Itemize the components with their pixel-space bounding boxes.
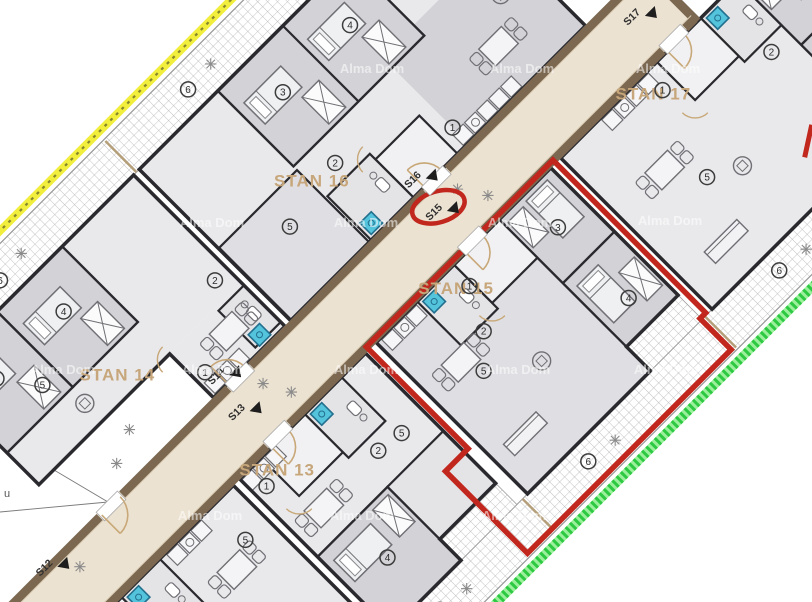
- svg-text:5: 5: [40, 380, 46, 391]
- floor-plan: uS12S13S14S15S16S17STAN 13STAN 15STAN 17…: [0, 0, 812, 602]
- svg-text:2: 2: [212, 276, 218, 287]
- svg-text:6: 6: [586, 457, 592, 468]
- svg-text:5: 5: [243, 535, 249, 546]
- apartment-label-stan-15: STAN 15: [418, 279, 494, 298]
- svg-text:6: 6: [0, 276, 3, 287]
- watermark: Alma Dom: [490, 61, 554, 76]
- svg-text:5: 5: [704, 173, 710, 184]
- apartment-label-stan-16: STAN 16: [274, 171, 350, 190]
- svg-text:5: 5: [287, 222, 293, 233]
- watermark: Alma Dom: [330, 508, 394, 523]
- svg-text:2: 2: [769, 47, 775, 58]
- apartment-label-stan-13: STAN 13: [239, 460, 315, 479]
- svg-text:1: 1: [264, 482, 270, 493]
- svg-text:5: 5: [399, 429, 405, 440]
- svg-text:2: 2: [481, 327, 487, 338]
- svg-text:STAN 16: STAN 16: [274, 171, 350, 190]
- svg-text:STAN 17: STAN 17: [616, 84, 692, 103]
- apartment-label-stan-17: STAN 17: [616, 84, 692, 103]
- svg-text:4: 4: [385, 553, 391, 564]
- svg-text:4: 4: [61, 307, 67, 318]
- svg-text:1: 1: [660, 86, 666, 97]
- site-boundary-line: [0, 502, 108, 512]
- svg-text:1: 1: [450, 123, 456, 134]
- watermark: Alma Dom: [182, 362, 246, 377]
- watermark: Alma Dom: [334, 362, 398, 377]
- watermark: Alma Dom: [636, 61, 700, 76]
- svg-text:6: 6: [185, 85, 191, 96]
- svg-text:1: 1: [467, 281, 473, 292]
- watermark: Alma Dom: [334, 215, 398, 230]
- watermark: Alma Dom: [340, 61, 404, 76]
- watermark: Alma Dom: [638, 213, 702, 228]
- plant-icon: [121, 421, 138, 438]
- svg-text:3: 3: [555, 223, 561, 234]
- corner-text: u: [4, 488, 10, 500]
- svg-text:6: 6: [776, 266, 782, 277]
- watermark: Alma Dom: [482, 508, 546, 523]
- svg-text:3: 3: [280, 88, 286, 99]
- watermark: Alma Dom: [178, 508, 242, 523]
- watermark: Alma Dom: [634, 362, 698, 377]
- plant-icon: [108, 455, 125, 472]
- svg-text:STAN 15: STAN 15: [418, 279, 494, 298]
- svg-text:2: 2: [376, 446, 382, 457]
- svg-text:STAN 13: STAN 13: [239, 460, 315, 479]
- watermark: Alma Dom: [488, 215, 552, 230]
- building-rotated-group: S12S13S14S15S16S17STAN 13STAN 15STAN 17S…: [0, 0, 812, 602]
- watermark: Alma Dom: [31, 362, 95, 377]
- svg-text:2: 2: [332, 158, 338, 169]
- svg-text:4: 4: [626, 294, 632, 305]
- watermark: Alma Dom: [180, 215, 244, 230]
- svg-text:4: 4: [347, 21, 353, 32]
- watermark: Alma Dom: [486, 362, 550, 377]
- floor-plan-svg: uS12S13S14S15S16S17STAN 13STAN 15STAN 17…: [0, 0, 812, 602]
